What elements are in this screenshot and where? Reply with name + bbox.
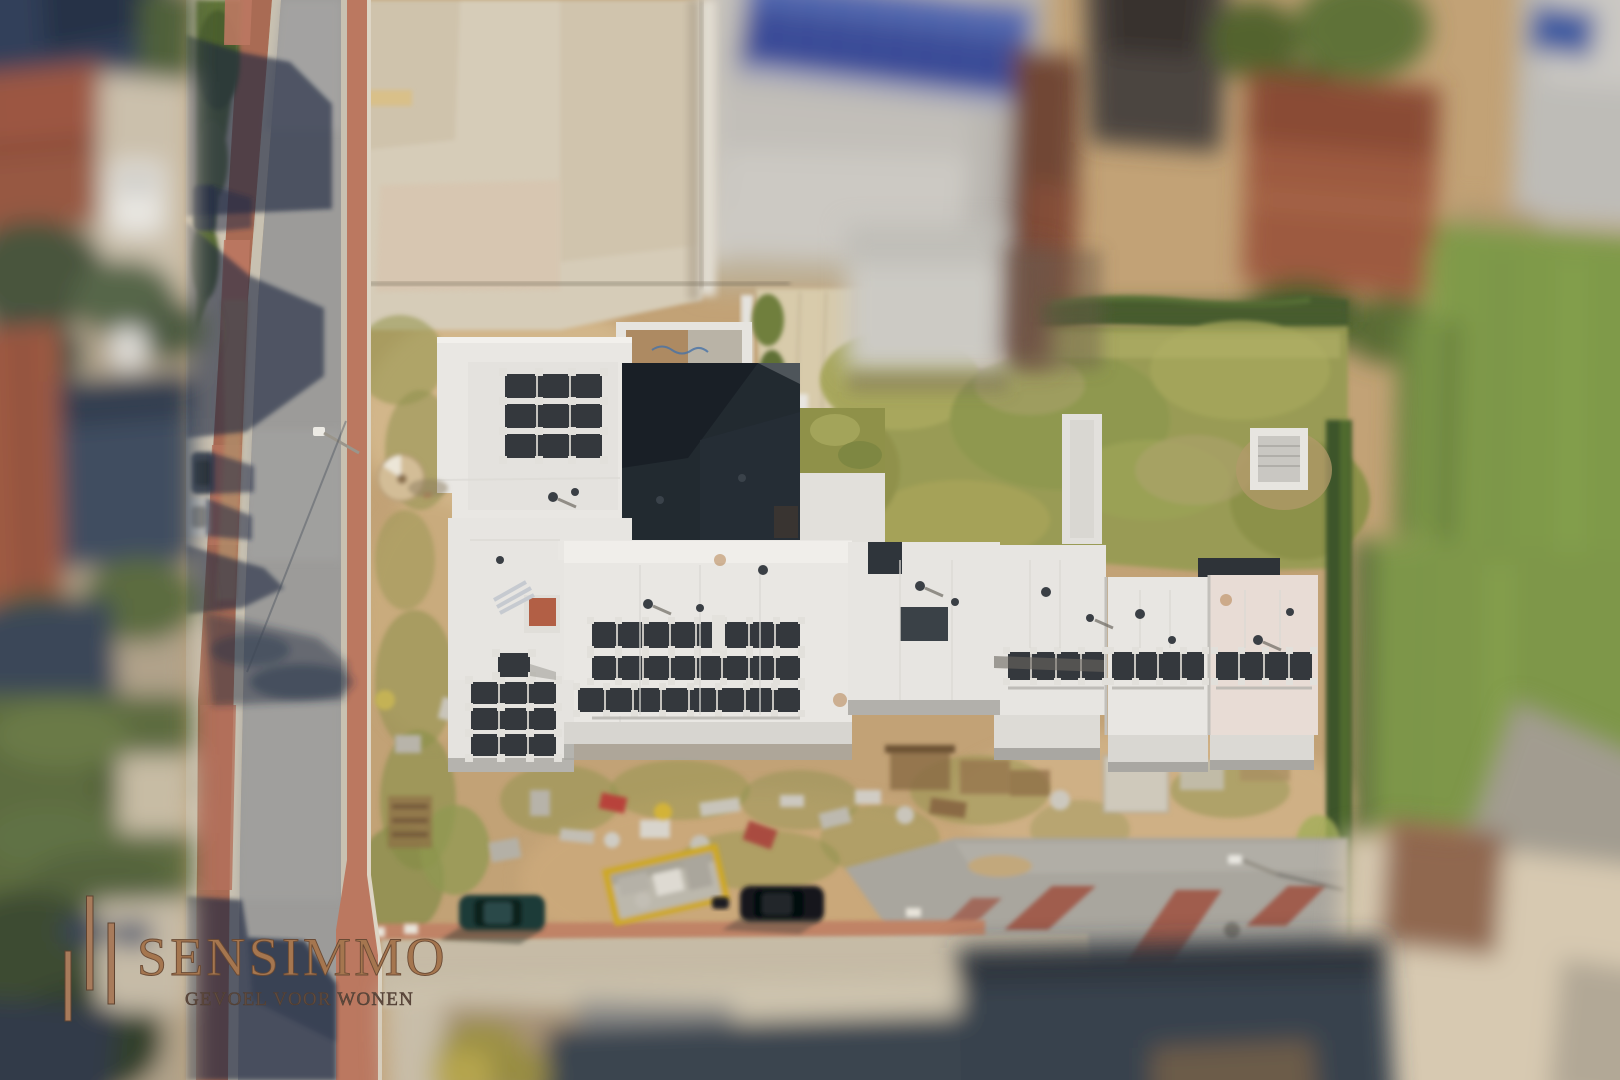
svg-text:GEVOEL VOOR WONEN: GEVOEL VOOR WONEN: [185, 989, 414, 1010]
svg-text:S: S: [421, 492, 432, 499]
svg-text:SENSIMMO: SENSIMMO: [137, 927, 448, 987]
